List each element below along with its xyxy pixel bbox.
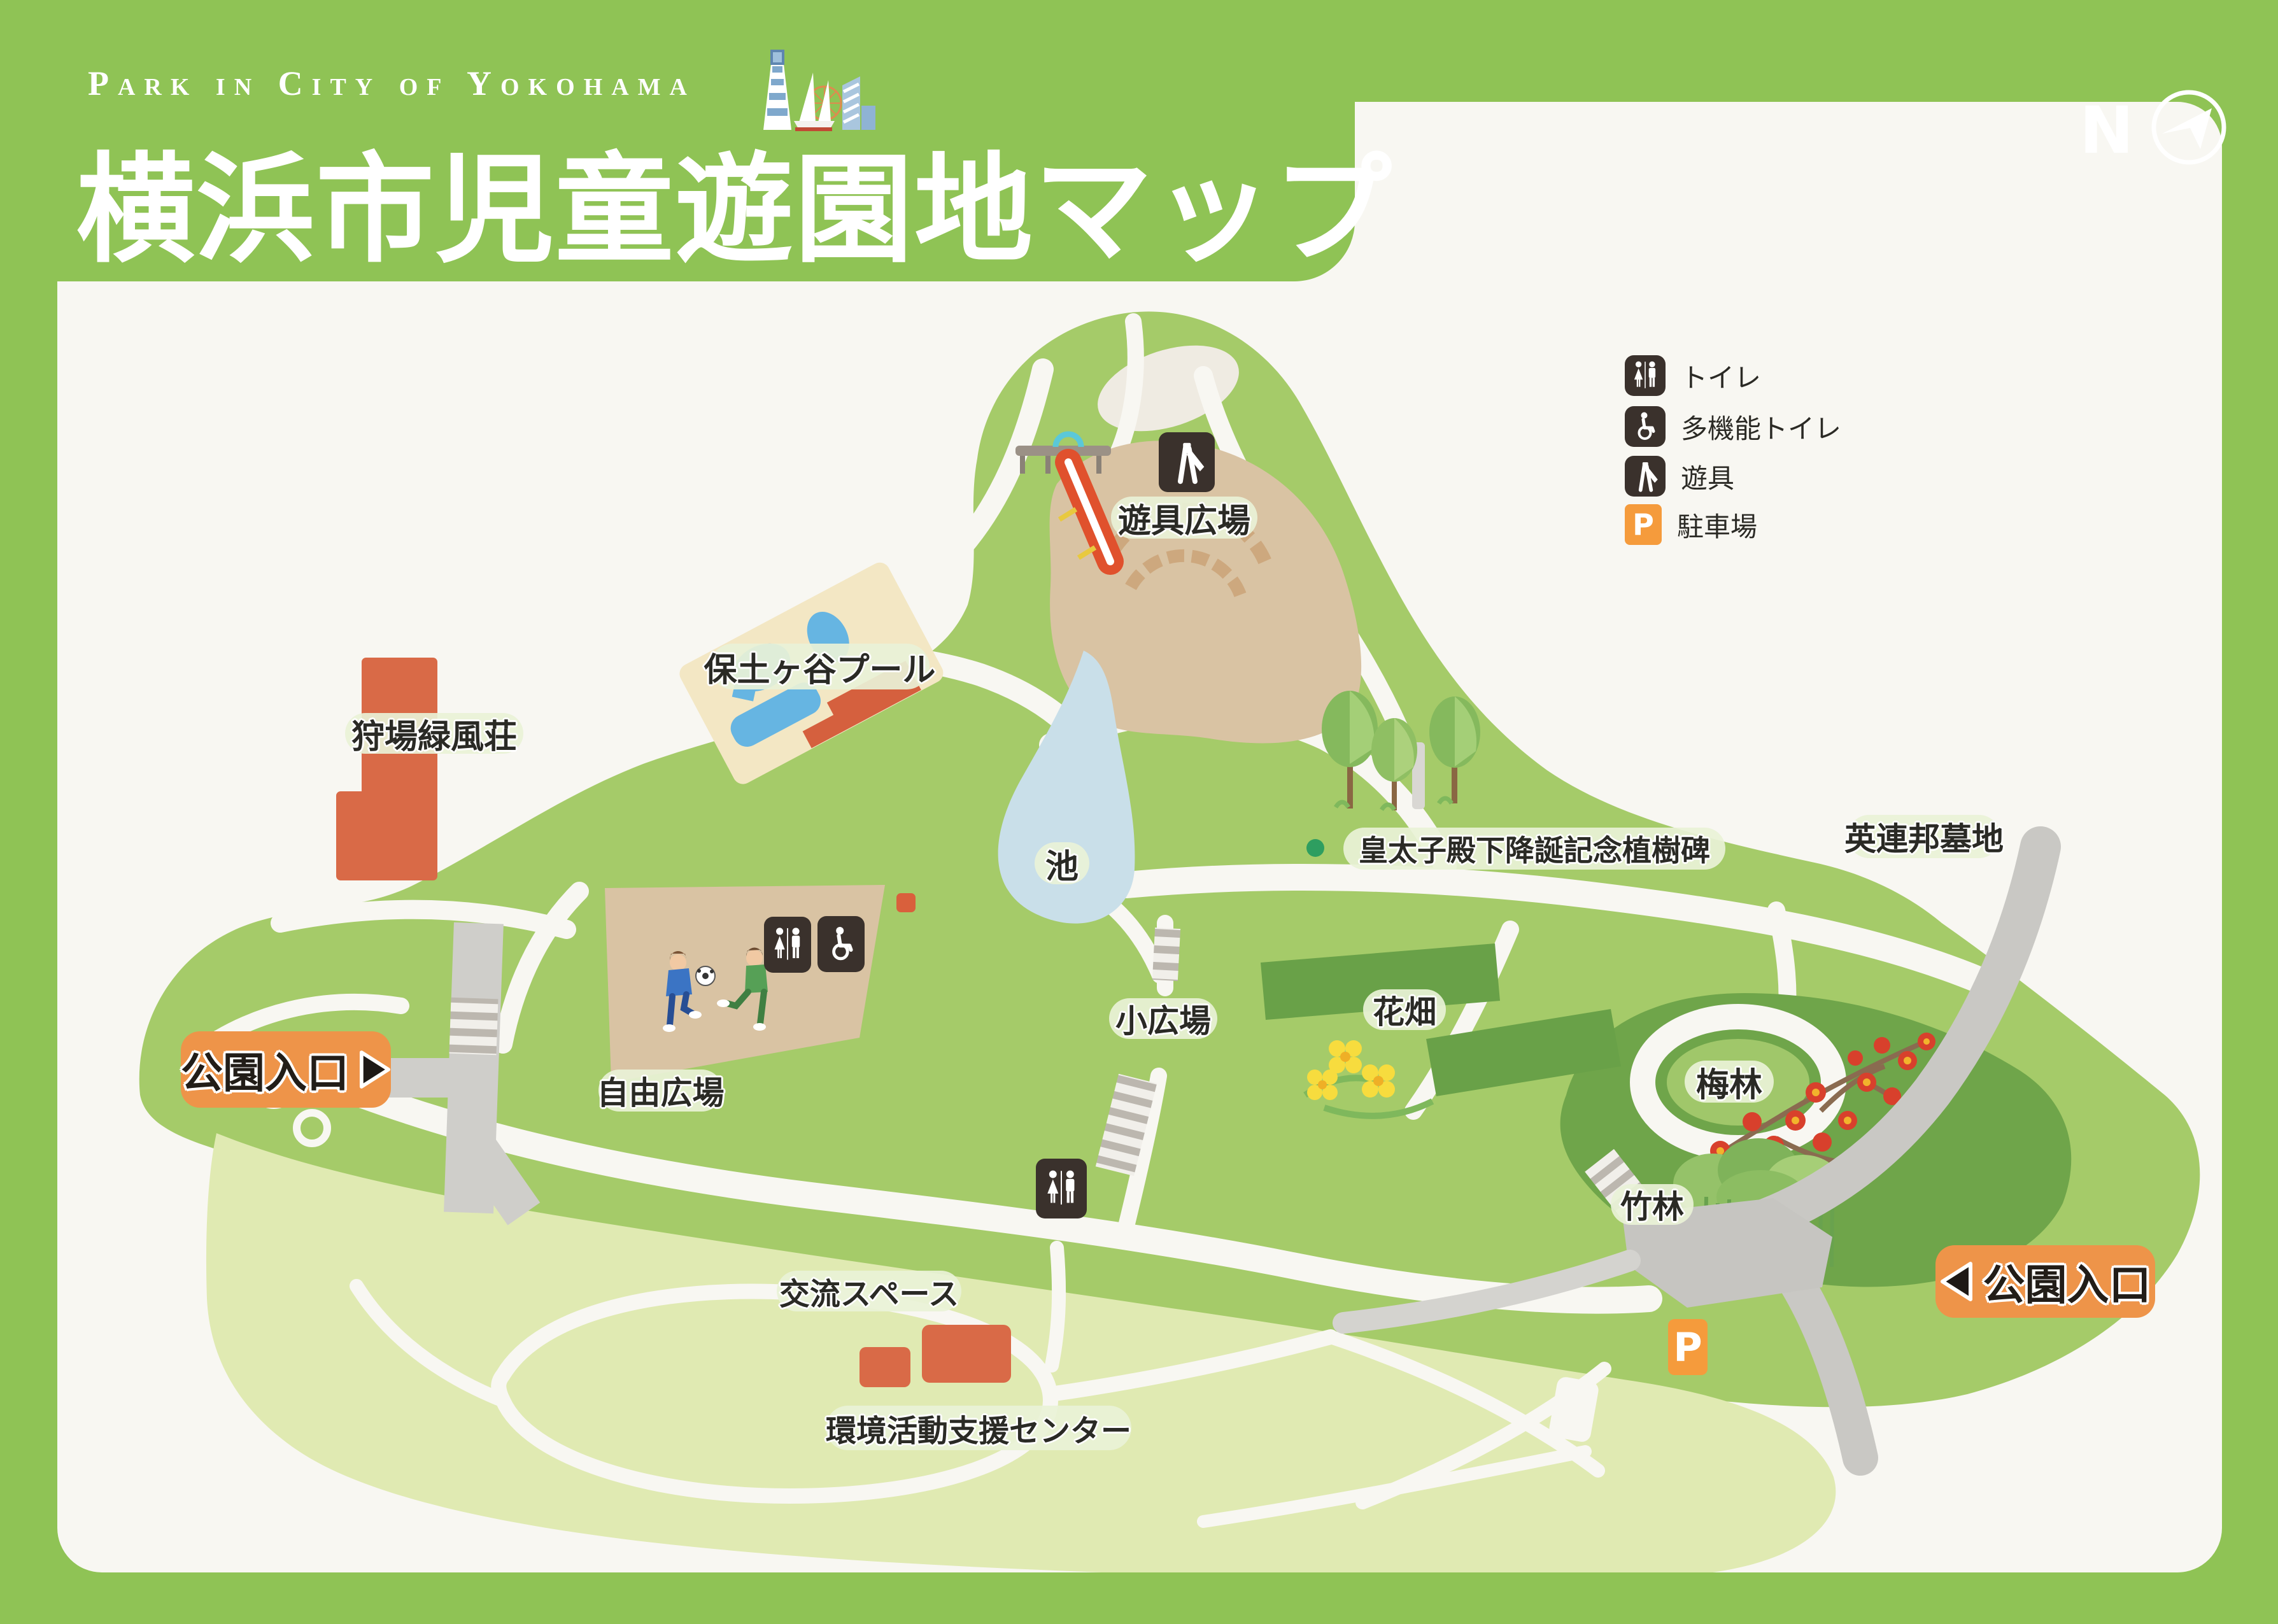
- label-exchange-space: 交流スペース: [777, 1271, 961, 1311]
- north-label: N: [2079, 93, 2133, 169]
- toilet-icon: [1625, 355, 1666, 396]
- north-arrow-icon: [2143, 84, 2232, 173]
- subtitle: Park in City of Yokohama: [88, 64, 696, 103]
- park-map-page: 遊具広場 保土ヶ谷プール 狩場緑風荘 池 皇太子殿下降誕記念植樹碑 英連邦墓地 …: [0, 0, 2278, 1624]
- page-title: 横浜市児童遊園地マップ: [76, 113, 1393, 285]
- park-entrance-right: 公園入口: [1935, 1245, 2155, 1318]
- toilet-icon: [764, 917, 811, 973]
- entrance-arrow-right-icon: [359, 1049, 391, 1090]
- accessible-toilet-icon: [817, 916, 865, 972]
- legend-item-parking: P 駐車場: [1625, 504, 1757, 545]
- entrance-arrow-left-icon: [1940, 1261, 1973, 1302]
- toilet-icon: [1036, 1159, 1087, 1218]
- playground-equipment-icon: [1159, 432, 1215, 492]
- parking-icon: P: [1668, 1319, 1708, 1375]
- legend-item-accessible-toilet: 多機能トイレ: [1625, 406, 1841, 447]
- parking-icon: P: [1625, 504, 1662, 545]
- label-bamboo-grove: 竹林: [1611, 1184, 1694, 1225]
- accessible-toilet-icon: [1625, 406, 1666, 447]
- monument-marker-dot: [1306, 839, 1324, 857]
- header: Park in City of Yokohama 横浜市児童遊園地マップ: [0, 0, 1355, 281]
- legend-item-playground: 遊具: [1625, 456, 1734, 497]
- park-entrance-left: 公園入口: [181, 1031, 391, 1108]
- label-lodge: 狩場緑風荘: [345, 713, 523, 754]
- label-pond: 池: [1035, 842, 1089, 884]
- playground-equipment-icon: [1625, 456, 1666, 497]
- label-monument: 皇太子殿下降誕記念植樹碑: [1343, 828, 1725, 870]
- label-plum-grove: 梅林: [1685, 1061, 1774, 1103]
- legend-item-toilet: トイレ: [1625, 355, 1761, 396]
- label-playground-plaza: 遊具広場: [1111, 497, 1257, 539]
- label-small-plaza: 小広場: [1109, 998, 1217, 1039]
- label-pool: 保土ヶ谷プール: [710, 644, 930, 689]
- map-canvas: 遊具広場 保土ヶ谷プール 狩場緑風荘 池 皇太子殿下降誕記念植樹碑 英連邦墓地 …: [57, 102, 2222, 1572]
- label-cemetery: 英連邦墓地: [1848, 815, 2000, 858]
- label-free-plaza: 自由広場: [598, 1070, 723, 1112]
- label-env-center: 環境活動支援センター: [826, 1406, 1131, 1450]
- label-flower-field: 花畑: [1363, 989, 1446, 1030]
